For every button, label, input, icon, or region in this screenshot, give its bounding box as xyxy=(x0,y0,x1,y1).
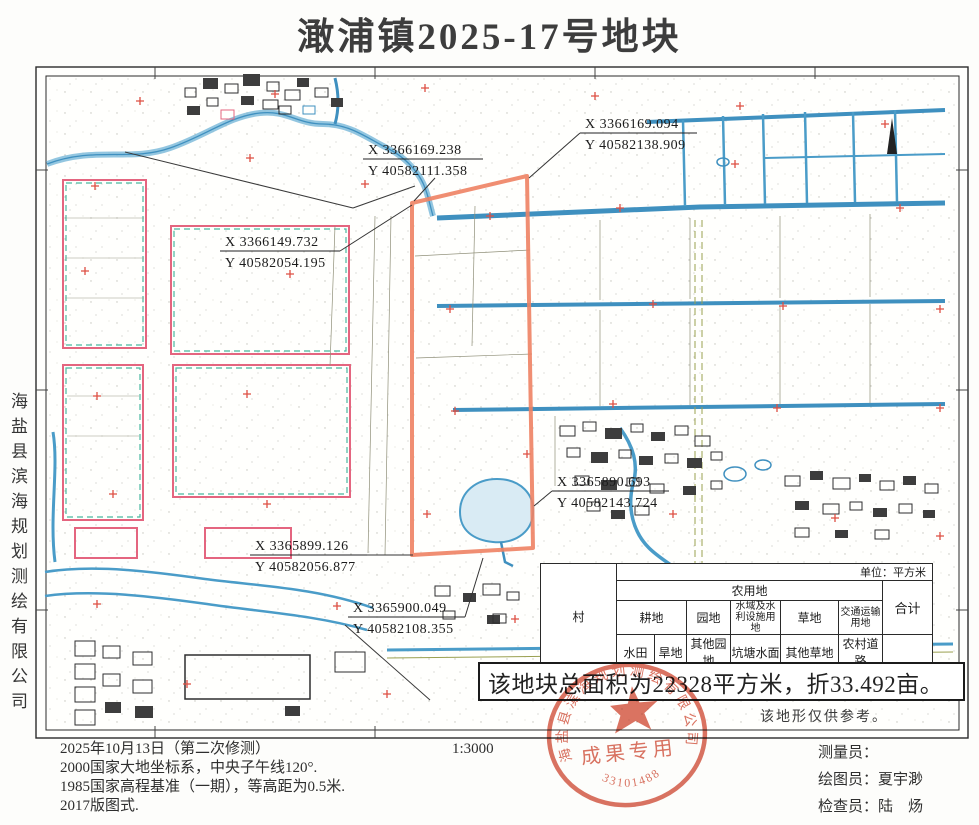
scale-label: 1:3000 xyxy=(452,741,494,758)
coord-y-value: Y 40582138.909 xyxy=(585,138,686,153)
coord-y-value: Y 40582143.724 xyxy=(557,496,658,511)
checker-name: 陆 炀 xyxy=(878,799,923,815)
company-vertical-label: 海盐县滨海规划测绘有限公司 xyxy=(5,392,30,717)
coord-x-value: X 3366169.238 xyxy=(368,143,462,158)
coord-x-value: X 3366149.732 xyxy=(225,235,319,250)
survey-notes: 2025年10月13日（第二次修测） 2000国家大地坐标系，中央子午线120°… xyxy=(60,740,345,816)
coord-y-value: Y 40582054.195 xyxy=(225,256,326,271)
reference-note: 该地形仅供参考。 xyxy=(760,706,888,726)
table-header-total: 合计 xyxy=(883,581,933,635)
table-header-cultivated: 耕地 xyxy=(617,601,687,635)
stamp-center-text: 成果专用 xyxy=(580,736,678,769)
scanned-map-document: { "page": { "title": "澉浦镇2025-17号地块" }, … xyxy=(0,0,979,824)
table-header-grass: 草地 xyxy=(781,601,839,635)
table-unit-label: 单位：平方米 xyxy=(617,564,933,581)
table-header-garden: 园地 xyxy=(687,601,731,635)
page-title: 澉浦镇2025-17号地块 xyxy=(0,6,979,60)
table-header-agricultural: 农用地 xyxy=(617,581,883,601)
star-icon xyxy=(608,684,660,734)
drafter-name: 夏宇渺 xyxy=(878,772,923,788)
table-header-water: 水域及水利设施用地 xyxy=(731,601,781,635)
coord-y-value: Y 40582108.355 xyxy=(353,622,454,637)
coord-x-value: X 3366169.094 xyxy=(585,117,679,132)
svg-text:33101488: 33101488 xyxy=(599,764,664,793)
drafter-line: 绘图员：夏宇渺 xyxy=(818,767,923,794)
note-line: 2000国家大地坐标系，中央子午线120°. xyxy=(60,759,345,778)
note-line: 2017版图式. xyxy=(60,797,345,816)
official-stamp: 海盐县滨海规划测绘有限公司 成果专用 33101488 xyxy=(520,645,740,825)
checker-label: 检查员： xyxy=(818,799,878,815)
coord-x-value: X 3365890.693 xyxy=(557,475,651,490)
drafter-label: 绘图员： xyxy=(818,772,878,788)
coord-y-value: Y 40582111.358 xyxy=(368,164,468,179)
staff-block: 测量员： 绘图员：夏宇渺 检查员：陆 炀 xyxy=(818,740,923,821)
surveyor-line: 测量员： xyxy=(818,740,923,767)
checker-line: 检查员：陆 炀 xyxy=(818,794,923,821)
stamp-number: 33101488 xyxy=(599,764,664,793)
surveyor-label: 测量员： xyxy=(818,745,878,761)
coord-x-value: X 3365899.126 xyxy=(255,539,349,554)
note-line: 2025年10月13日（第二次修测） xyxy=(60,740,345,759)
table-header-transport: 交通运输用地 xyxy=(839,601,883,635)
coord-x-value: X 3365900.049 xyxy=(353,601,447,616)
coord-y-value: Y 40582056.877 xyxy=(255,560,356,575)
note-line: 1985国家高程基准（一期），等高距为0.5米. xyxy=(60,778,345,797)
